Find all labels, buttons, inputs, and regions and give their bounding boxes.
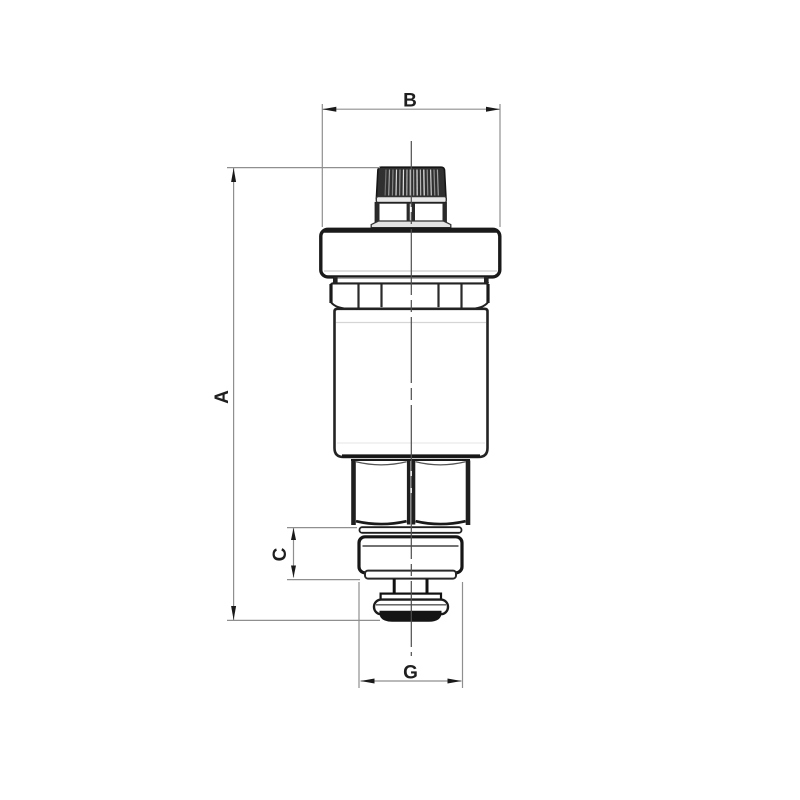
svg-text:C: C [270, 547, 291, 561]
svg-text:G: G [403, 663, 418, 684]
svg-text:B: B [403, 91, 417, 112]
svg-text:A: A [212, 390, 233, 404]
